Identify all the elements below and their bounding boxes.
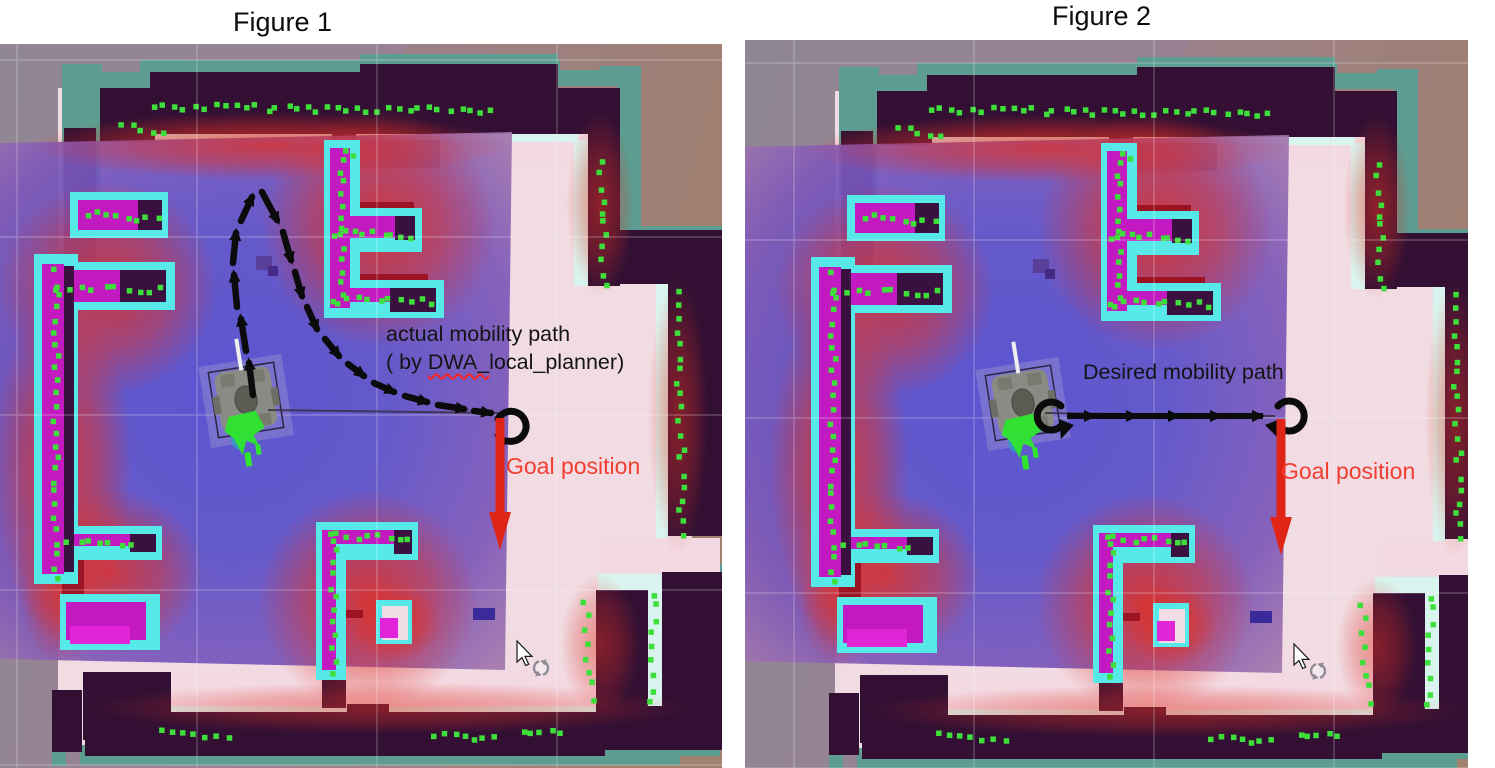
annotation-line1: actual mobility path [386,320,624,348]
annotation-line2: ( by DWA_local_planner) [386,348,624,376]
figure2-map-panel: Desired mobility path Goal position [745,40,1468,768]
map-content [745,40,1468,768]
figure1-goal-label: Goal position [506,453,640,480]
figure1-costmap-visualization [0,44,722,768]
figure1-title: Figure 1 [233,7,332,38]
misspelled-word: DWA_ [428,350,489,374]
figure1-map-panel: actual mobility path ( by DWA_local_plan… [0,44,722,768]
map-content [0,44,722,768]
figure1-path-annotation: actual mobility path ( by DWA_local_plan… [386,320,624,376]
figure2-goal-label: Goal position [1281,458,1415,485]
figure2-title: Figure 2 [1052,1,1151,32]
figure2-path-annotation: Desired mobility path [1083,358,1284,386]
rotate-view-icon [533,660,550,677]
rotate-view-icon [1310,663,1327,680]
figure2-costmap-visualization [745,40,1468,768]
